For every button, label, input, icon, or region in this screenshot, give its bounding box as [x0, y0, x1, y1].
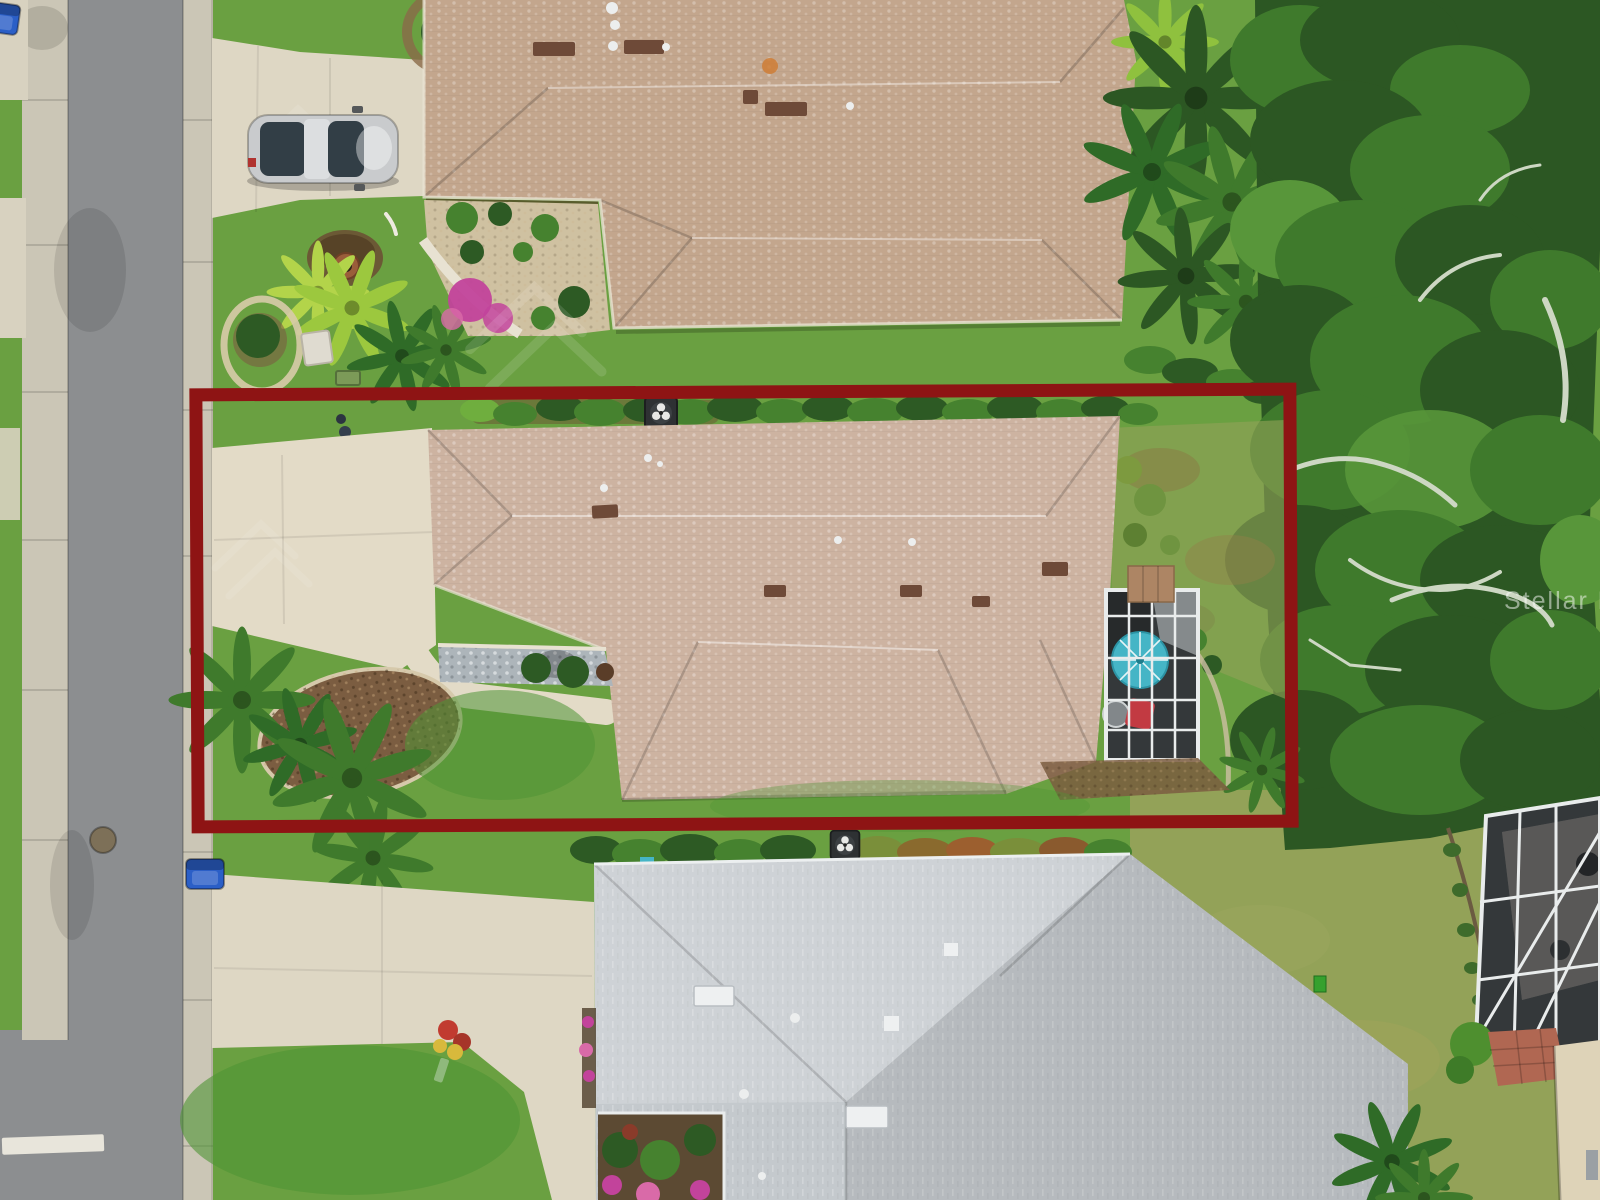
- utility-box: [336, 371, 360, 385]
- south-front-bed: [598, 1113, 724, 1200]
- teal-umbrella: [1112, 632, 1168, 688]
- trash-bin-far-left: [0, 1, 21, 36]
- car-taillight: [248, 158, 256, 167]
- watermark-stellar-mls: Stellar MLS: [1504, 587, 1600, 615]
- manhole-cover: [90, 827, 116, 853]
- stop-line: [2, 1134, 105, 1155]
- utility-pad: [301, 330, 333, 366]
- yard-item-green: [1314, 976, 1326, 992]
- parked-car: [247, 106, 399, 191]
- aerial-photo: Stellar MLS: [0, 0, 1600, 1200]
- tire-shadow: [54, 208, 126, 332]
- trash-bin-south: [186, 859, 224, 889]
- paver-pad: [1128, 566, 1174, 602]
- ac-fan-unit-subject: [645, 397, 677, 429]
- car-rear-glass: [260, 122, 306, 176]
- pool-enclosure: [1103, 590, 1198, 760]
- ac-fan-unit-south: [831, 831, 860, 860]
- street: [0, 0, 213, 1200]
- car-roof: [304, 119, 330, 179]
- aerial-scene: Stellar MLS: [0, 0, 1600, 1200]
- entry-bush: [521, 653, 551, 683]
